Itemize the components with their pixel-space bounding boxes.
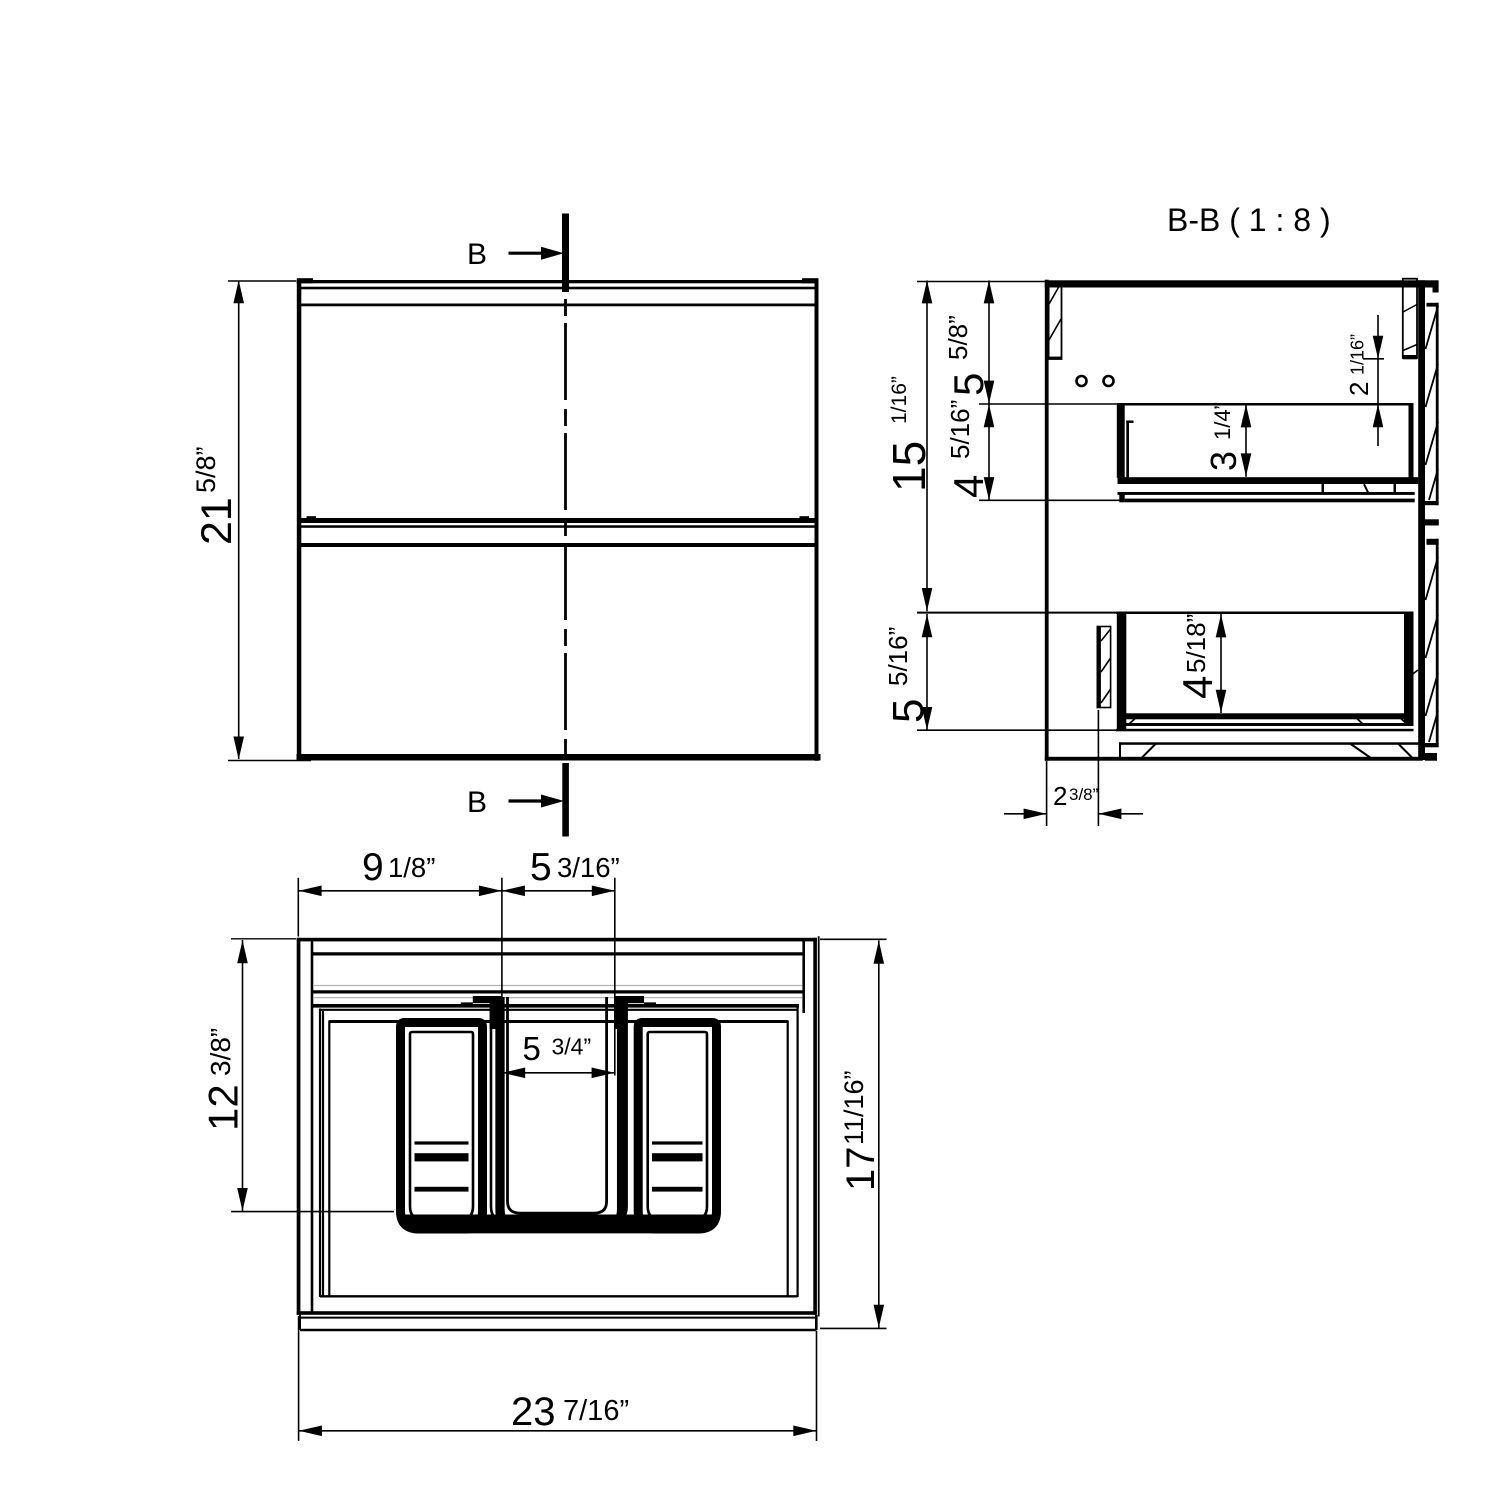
svg-text:1/4”: 1/4”	[1210, 402, 1235, 440]
svg-text:15: 15	[883, 441, 935, 492]
svg-text:B: B	[467, 238, 487, 271]
svg-text:3: 3	[1203, 451, 1244, 471]
svg-text:5/8”: 5/8”	[943, 315, 973, 360]
svg-text:B: B	[467, 786, 487, 819]
svg-text:4: 4	[945, 475, 992, 498]
svg-text:3/8”: 3/8”	[205, 1028, 236, 1076]
svg-text:4: 4	[1174, 676, 1221, 699]
svg-text:23: 23	[511, 1390, 556, 1434]
svg-text:5/18”: 5/18”	[1181, 614, 1211, 673]
svg-text:5: 5	[530, 846, 552, 889]
svg-text:1/16”: 1/16”	[888, 376, 911, 424]
svg-text:5/8”: 5/8”	[191, 446, 221, 493]
svg-text:5: 5	[884, 699, 933, 723]
svg-text:9: 9	[362, 846, 384, 889]
svg-text:1/8”: 1/8”	[388, 852, 435, 883]
svg-text:17: 17	[839, 1147, 883, 1192]
svg-text:5/16”: 5/16”	[945, 400, 975, 459]
svg-text:2: 2	[1053, 781, 1067, 811]
svg-text:21: 21	[193, 497, 241, 545]
svg-text:5: 5	[523, 1030, 541, 1067]
svg-text:12: 12	[200, 1084, 247, 1131]
svg-text:B-B ( 1 : 8 ): B-B ( 1 : 8 )	[1167, 202, 1331, 238]
svg-text:3/8”: 3/8”	[1069, 785, 1099, 804]
svg-text:5: 5	[945, 373, 992, 396]
svg-text:1/16”: 1/16”	[1348, 334, 1368, 375]
svg-text:11/16”: 11/16”	[839, 1070, 869, 1145]
svg-text:2: 2	[1344, 382, 1374, 396]
svg-text:5/16”: 5/16”	[883, 627, 913, 686]
svg-text:3/16”: 3/16”	[557, 852, 620, 883]
svg-text:3/4”: 3/4”	[552, 1034, 592, 1060]
svg-text:7/16”: 7/16”	[563, 1395, 629, 1427]
